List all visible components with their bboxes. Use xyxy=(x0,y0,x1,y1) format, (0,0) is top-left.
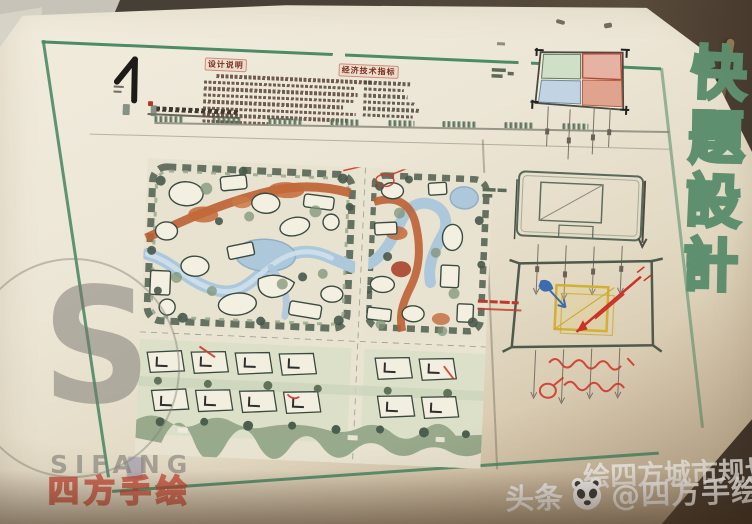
design-notes-heading: 设计说明 xyxy=(205,57,248,72)
photo-scene: 设计说明 经济技术指标 xyxy=(0,0,752,524)
vertical-title-char: 快 xyxy=(674,41,752,107)
land-use-quadrant-diagram xyxy=(488,42,632,162)
logo-mark-icon xyxy=(109,55,145,108)
watermark-red-seal: 四方手绘 xyxy=(48,466,192,511)
handwriting-line xyxy=(364,80,410,86)
panda-logo-icon xyxy=(567,475,606,514)
masterplan-drawing xyxy=(135,158,494,469)
handwriting-line xyxy=(363,106,419,112)
watermark-handle: @四方手绘设计教育 xyxy=(610,463,752,514)
indicators-lines xyxy=(363,80,425,119)
handwriting-line xyxy=(363,100,415,106)
vertical-exam-title: 快題設計 xyxy=(665,42,752,298)
red-correction-notes xyxy=(533,350,685,412)
indicators-block: 经济技术指标 xyxy=(337,57,490,124)
vertical-title-char: 計 xyxy=(666,234,752,298)
toutiao-label: 头条 xyxy=(504,475,563,519)
handwriting-line xyxy=(364,93,408,98)
road-structure-diagram xyxy=(478,170,649,303)
title-sub-mark xyxy=(123,104,130,115)
indicators-heading: 经济技术指标 xyxy=(338,63,399,79)
handwriting-line xyxy=(364,87,404,92)
watermark-big-letter: S xyxy=(42,268,151,426)
vertical-title-char: 題 xyxy=(672,106,752,170)
vertical-title-char: 設 xyxy=(668,169,752,235)
